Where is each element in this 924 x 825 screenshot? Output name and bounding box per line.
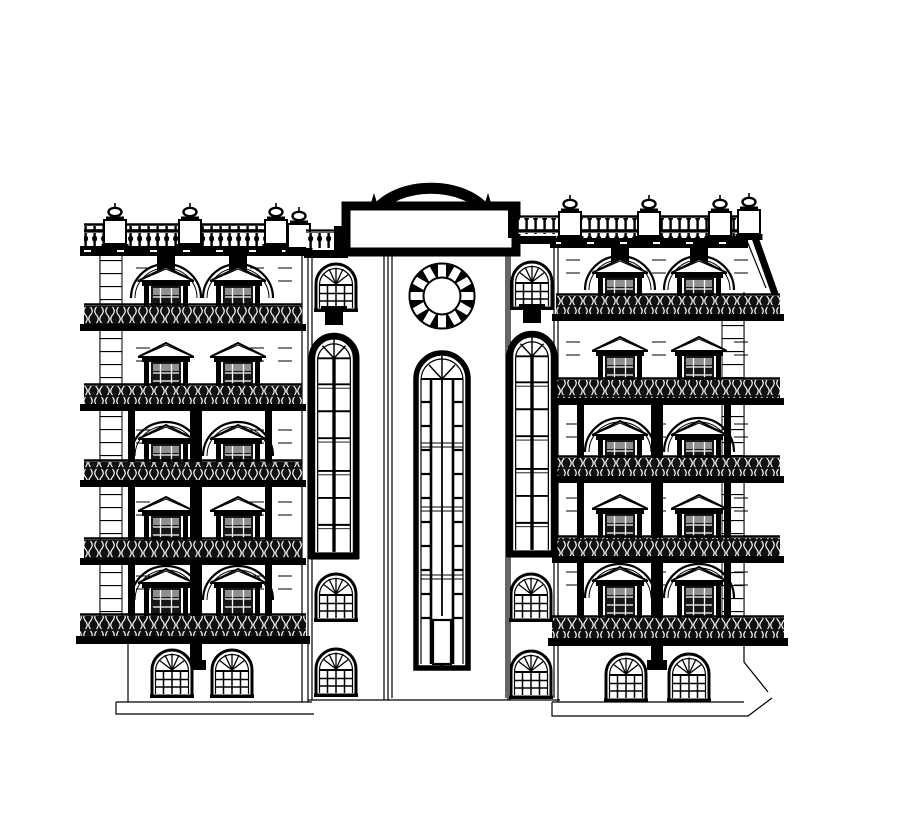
arched-window [509,651,553,699]
pedestal-cap [321,306,347,311]
connector-cornice [516,236,556,244]
balcony-ironwork-railing [84,386,302,404]
balcony-slab [80,558,306,565]
balcony-slab [80,404,306,411]
balustrade-post-with-urn-finial [736,193,763,240]
arched-window [314,649,358,697]
balcony-ironwork-railing [556,296,780,314]
balcony-ironwork-railing [552,618,784,638]
arched-window [509,574,553,622]
balcony-ironwork-railing [80,616,306,636]
ground-floor-arched-window [210,650,254,698]
pilaster-plinth [647,660,667,670]
balustrade-post-with-urn-finial [707,195,734,242]
balcony-slab [548,638,788,646]
slender-column [577,404,584,620]
tall-arched-window [309,336,358,559]
balustrade-post-with-urn-finial [102,203,129,250]
ground-floor-arched-window [604,654,648,702]
drawing-sheet [0,0,924,825]
balcony-slab [552,476,784,483]
balcony-ironwork-railing [556,458,780,476]
balustrade-post-with-urn-finial [636,195,663,242]
left-wing-section [76,203,313,698]
ground-floor-arched-window [150,650,194,698]
slender-column [265,408,272,618]
connector-balustrade [518,218,556,234]
parapet-step-block [508,210,518,238]
slender-column [128,408,135,618]
central-tall-window [416,353,468,668]
balcony-ironwork-railing [556,380,780,398]
balcony-slab [80,324,306,331]
right-flank-bay [507,262,556,699]
right-wing-section [548,193,788,702]
parapet-step-block [334,226,348,252]
round-window-inner-rim [424,278,461,315]
balustrade-post-with-urn-finial [557,195,584,242]
attic-arched-window [510,262,554,310]
arched-window [314,574,358,622]
balcony-slab [80,480,306,487]
tall-arched-window [507,334,556,557]
elevation-drawing [0,0,924,825]
slender-column [724,404,731,620]
parapet-panel [346,206,516,252]
balcony-slab [552,556,784,563]
pedestal [523,309,541,323]
plinth-right [552,698,772,716]
balcony-slab [552,314,784,321]
ground-floor-arched-window [667,654,711,702]
plinth-left [116,702,314,714]
balustrade-post-with-urn-finial [177,203,204,250]
pedestal-cap [519,304,545,309]
balcony-ironwork-railing [84,306,302,324]
left-flank-bay [309,264,358,697]
balcony-slab [76,636,310,644]
balcony-ironwork-railing [84,462,302,480]
balcony-ironwork-railing [84,540,302,558]
pedestal [325,311,343,325]
attic-arched-window [314,264,358,312]
balcony-slab [552,398,784,405]
balustrade-post-with-urn-finial [263,203,290,250]
balcony-ironwork-railing [556,538,780,556]
